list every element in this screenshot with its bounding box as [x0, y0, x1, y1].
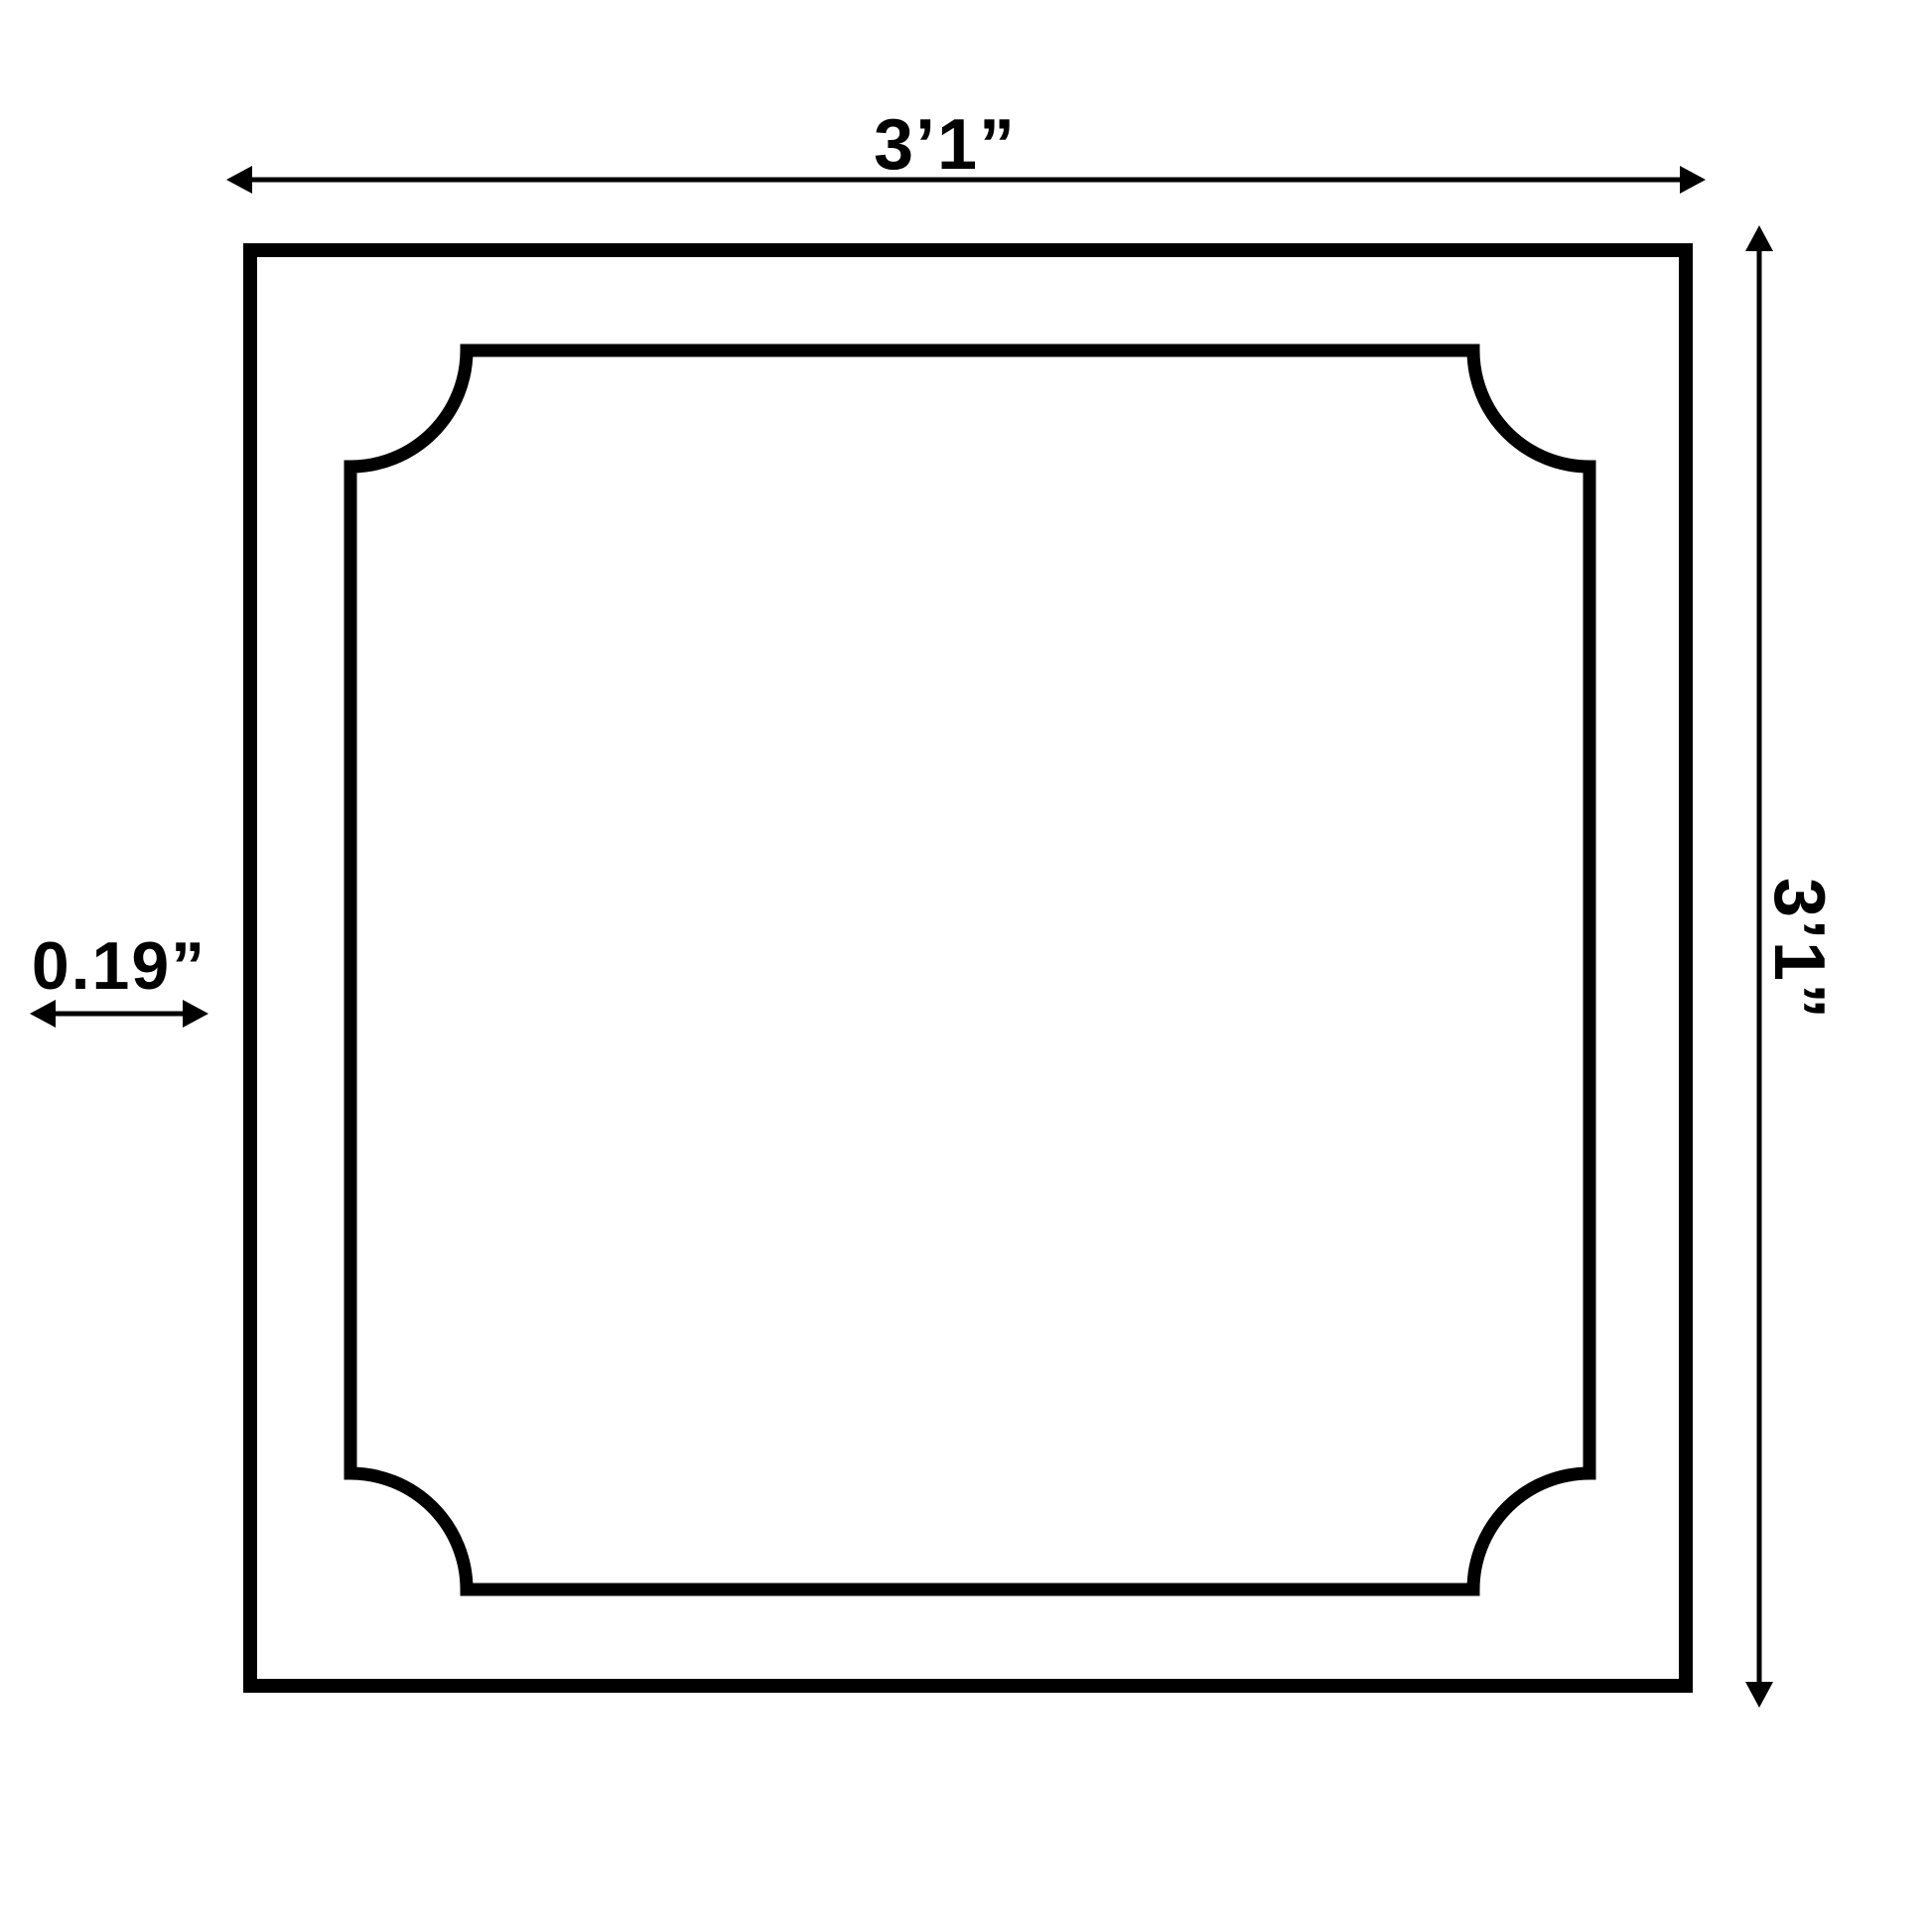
thickness-dimension-label: 0.19” [32, 928, 207, 1004]
arrow-right-icon [1680, 166, 1706, 194]
inner-scalloped-frame [350, 350, 1589, 1589]
height-dimension: 3’1” [1745, 225, 1839, 1708]
width-dimension: 3’1” [226, 105, 1706, 194]
arrow-up-icon [1745, 225, 1773, 251]
width-dimension-label: 3’1” [874, 105, 1017, 185]
diagram-canvas: 3’1” 3’1” 0.19” [0, 0, 1932, 1932]
height-dimension-label: 3’1” [1759, 878, 1839, 1021]
dimension-diagram: 3’1” 3’1” 0.19” [0, 0, 1932, 1932]
arrow-down-icon [1745, 1682, 1773, 1708]
outer-square [250, 250, 1686, 1686]
arrow-left-icon [226, 166, 252, 194]
double-arrow-left-head [30, 1000, 56, 1028]
thickness-dimension: 0.19” [30, 928, 208, 1028]
double-arrow-right-head [183, 1000, 208, 1028]
